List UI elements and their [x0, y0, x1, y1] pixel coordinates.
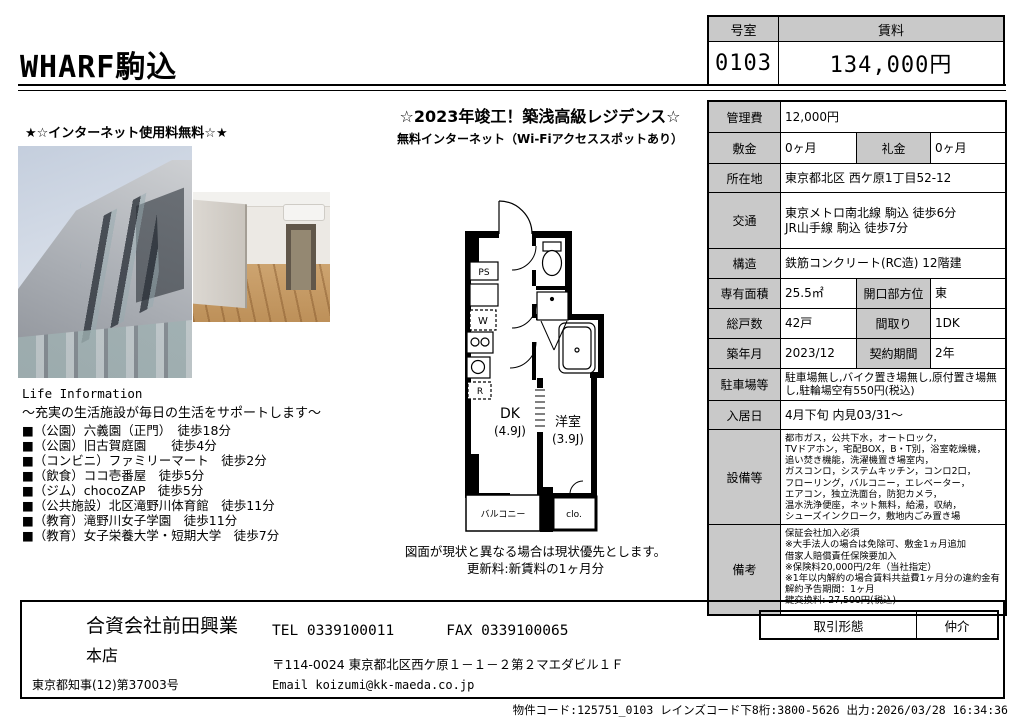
- dk-label: DK: [500, 406, 521, 422]
- closet-label: clo.: [566, 510, 582, 520]
- life-information-heading: Life Information: [22, 386, 352, 401]
- details-label: 築年月: [709, 339, 781, 368]
- company-email: Email koizumi@kk-maeda.co.jp: [272, 678, 474, 692]
- life-info-item: ■（教育）滝野川女子学園 徒歩11分: [22, 513, 352, 528]
- room-number-header: 号室: [709, 17, 779, 41]
- center-banner-sub: 無料インターネット（Wi-Fiアクセススポットあり）: [360, 130, 720, 147]
- details-value: 12,000円: [781, 102, 1005, 132]
- details-value: 42戸: [781, 309, 857, 338]
- entry-door: [499, 201, 532, 234]
- free-internet-banner: ★☆インターネット使用料無料☆★: [25, 122, 228, 141]
- details-label: 設備等: [709, 430, 781, 524]
- details-value: 都市ガス，公共下水，オートロック， TVドアホン，宅配BOX，B・T別，浴室乾燥…: [781, 430, 1005, 524]
- building-exterior-photo: [18, 146, 192, 378]
- company-address: 〒114-0024 東京都北区西ケ原１－１－２第２マエダビル１Ｆ: [272, 654, 624, 673]
- life-info-item: ■（教育）女子栄養大学・短期大学 徒歩7分: [22, 528, 352, 543]
- company-name: 合資会社前田興業: [86, 611, 238, 638]
- details-value: 2年: [931, 339, 1005, 368]
- floor-plan-caption-line1: 図面が現状と異なる場合は現状優先とします。: [368, 543, 703, 560]
- western-room-size-label: (3.9J): [552, 432, 584, 446]
- balcony-label: バルコニー: [481, 509, 526, 520]
- room-number-value: 0103: [709, 42, 779, 84]
- details-row: 専有面積25.5㎡開口部方位東: [709, 279, 1005, 309]
- details-value: 0ヶ月: [781, 133, 857, 163]
- details-label: 礼金: [857, 133, 931, 163]
- life-info-item: ■（公園）六義園（正門） 徒歩18分: [22, 423, 352, 438]
- center-banner: ☆2023年竣工！築浅高級レジデンス☆ 無料インターネット（Wi-Fiアクセスス…: [360, 103, 720, 147]
- life-info-item: ■（コンビニ）ファミリーマート 徒歩2分: [22, 453, 352, 468]
- company-license-number: 東京都知事(12)第37003号: [32, 676, 179, 693]
- center-banner-main: ☆2023年竣工！築浅高級レジデンス☆: [360, 103, 720, 127]
- details-label: 駐車場等: [709, 369, 781, 400]
- deal-type-label: 取引形態: [761, 612, 917, 638]
- western-room-label: 洋室: [555, 414, 581, 430]
- details-value: 東: [931, 279, 1005, 308]
- details-value: 東京都北区 西ケ原1丁目52-12: [781, 164, 1005, 192]
- interior-ac-unit-shape: [283, 204, 325, 221]
- details-label: 入居日: [709, 401, 781, 429]
- floor-plan: PS W R DK (4.9J) 洋室 (3.9J) バルコニー clo.: [452, 192, 652, 542]
- ps-label: PS: [478, 268, 489, 278]
- details-label: 開口部方位: [857, 279, 931, 308]
- company-tel-fax: TEL 0339100011FAX 0339100065: [272, 623, 568, 639]
- life-information-section: Life Information ～充実の生活施設が毎日の生活をサポートします～…: [22, 386, 352, 543]
- floor-plan-caption-line2: 更新料:新賃料の1ヶ月分: [368, 560, 703, 577]
- details-row: 交通東京メトロ南北線 駒込 徒歩6分 JR山手線 駒込 徒歩7分: [709, 193, 1005, 249]
- deal-type-table: 取引形態 仲介: [759, 610, 999, 640]
- details-label: 契約期間: [857, 339, 931, 368]
- floor-plan-caption: 図面が現状と異なる場合は現状優先とします。 更新料:新賃料の1ヶ月分: [368, 543, 703, 577]
- details-label: 構造: [709, 249, 781, 278]
- life-information-subheading: ～充実の生活施設が毎日の生活をサポートします～: [22, 402, 352, 421]
- room-rent-header-row: 号室 賃料: [709, 17, 1003, 42]
- rent-value: 134,000円: [779, 42, 1003, 84]
- details-value: 4月下旬 内見03/31～: [781, 401, 1005, 429]
- dk-size-label: (4.9J): [494, 424, 526, 438]
- details-row: 所在地東京都北区 西ケ原1丁目52-12: [709, 164, 1005, 193]
- company-info-box: 合資会社前田興業 本店 東京都知事(12)第37003号 TEL 0339100…: [20, 600, 1005, 699]
- details-row: 入居日4月下旬 内見03/31～: [709, 401, 1005, 430]
- floor-plan-drawing: PS W R DK (4.9J) 洋室 (3.9J) バルコニー clo.: [452, 192, 652, 542]
- details-label: 敷金: [709, 133, 781, 163]
- details-row: 築年月2023/12契約期間2年: [709, 339, 1005, 369]
- fixtures: [466, 242, 596, 531]
- sliding-door-gap: [537, 388, 543, 432]
- company-fax: FAX 0339100065: [446, 623, 568, 639]
- details-value: 東京メトロ南北線 駒込 徒歩6分 JR山手線 駒込 徒歩7分: [781, 193, 1005, 248]
- details-row: 敷金0ヶ月礼金0ヶ月: [709, 133, 1005, 164]
- details-label: 管理費: [709, 102, 781, 132]
- washer-label: W: [478, 316, 488, 327]
- room-rent-table: 号室 賃料 0103 134,000円: [707, 15, 1005, 86]
- details-label: 専有面積: [709, 279, 781, 308]
- details-row: 総戸数42戸間取り1DK: [709, 309, 1005, 339]
- life-information-list: ■（公園）六義園（正門） 徒歩18分■（公園）旧古賀庭園 徒歩4分■（コンビニ）…: [22, 423, 352, 543]
- deal-type-value: 仲介: [917, 612, 997, 638]
- property-flyer-page: WHARF駒込 号室 賃料 0103 134,000円 ★☆インターネット使用料…: [0, 0, 1024, 724]
- life-info-item: ■（飲食）ココ壱番屋 徒歩5分: [22, 468, 352, 483]
- interior-doorway-shape: [286, 224, 316, 290]
- company-tel: TEL 0339100011: [272, 623, 394, 639]
- details-value: 0ヶ月: [931, 133, 1005, 163]
- interior-door-shape: [193, 200, 247, 309]
- room-rent-value-row: 0103 134,000円: [709, 42, 1003, 84]
- company-branch: 本店: [86, 642, 118, 666]
- life-info-item: ■（公園）旧古賀庭園 徒歩4分: [22, 438, 352, 453]
- details-row: 駐車場等駐車場無し,バイク置き場無し,原付置き場無し,駐輪場空有550円(税込): [709, 369, 1005, 401]
- details-value: 鉄筋コンクリート(RC造) 12階建: [781, 249, 1005, 278]
- details-row: 設備等都市ガス，公共下水，オートロック， TVドアホン，宅配BOX，B・T別，浴…: [709, 430, 1005, 525]
- interior-photo: [193, 192, 330, 322]
- details-table: 管理費12,000円敷金0ヶ月礼金0ヶ月所在地東京都北区 西ケ原1丁目52-12…: [707, 100, 1007, 616]
- details-label: 交通: [709, 193, 781, 248]
- details-label: 所在地: [709, 164, 781, 192]
- life-info-item: ■（公共施設）北区滝野川体育館 徒歩11分: [22, 498, 352, 513]
- details-value: 1DK: [931, 309, 1005, 338]
- details-value: 25.5㎡: [781, 279, 857, 308]
- details-value: 2023/12: [781, 339, 857, 368]
- details-value: 駐車場無し,バイク置き場無し,原付置き場無し,駐輪場空有550円(税込): [781, 369, 1005, 400]
- details-label: 間取り: [857, 309, 931, 338]
- details-row: 管理費12,000円: [709, 102, 1005, 133]
- rent-header: 賃料: [779, 17, 1003, 41]
- details-label: 総戸数: [709, 309, 781, 338]
- footer-property-code: 物件コード:125751_0103 レインズコード下8桁:3800-5626 出…: [513, 702, 1008, 718]
- details-row: 構造鉄筋コンクリート(RC造) 12階建: [709, 249, 1005, 279]
- life-info-item: ■（ジム）chocoZAP 徒歩5分: [22, 483, 352, 498]
- page-title: WHARF駒込: [20, 42, 177, 86]
- refrigerator-label: R: [477, 387, 483, 397]
